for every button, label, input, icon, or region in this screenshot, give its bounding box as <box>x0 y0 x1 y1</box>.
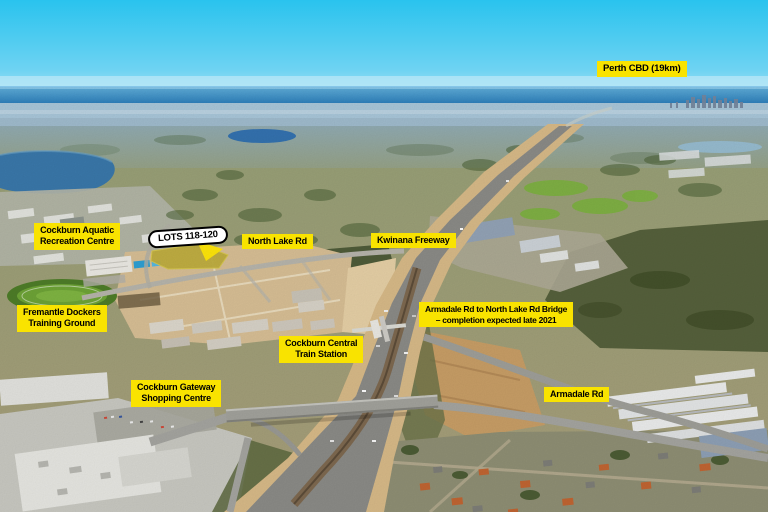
photo-grain <box>0 126 768 512</box>
label-north-lake-rd: North Lake Rd <box>242 234 313 249</box>
label-cockburn-aquatic-recreation-centre: Cockburn Aquatic Recreation Centre <box>34 223 120 250</box>
annotated-aerial-image: Perth CBD (19km) Cockburn Aquatic Recrea… <box>0 0 768 512</box>
label-armadale-rd: Armadale Rd <box>544 387 609 402</box>
city-horizon <box>0 103 768 129</box>
label-armadale-north-lake-bridge: Armadale Rd to North Lake Rd Bridge – co… <box>419 302 573 327</box>
label-cockburn-gateway-shopping-centre: Cockburn Gateway Shopping Centre <box>131 380 221 407</box>
label-cockburn-central-train-station: Cockburn Central Train Station <box>279 336 363 363</box>
label-fremantle-dockers-training-ground: Fremantle Dockers Training Ground <box>17 305 107 332</box>
label-perth-cbd: Perth CBD (19km) <box>597 61 687 77</box>
sky <box>0 0 768 94</box>
label-kwinana-freeway: Kwinana Freeway <box>371 233 456 248</box>
